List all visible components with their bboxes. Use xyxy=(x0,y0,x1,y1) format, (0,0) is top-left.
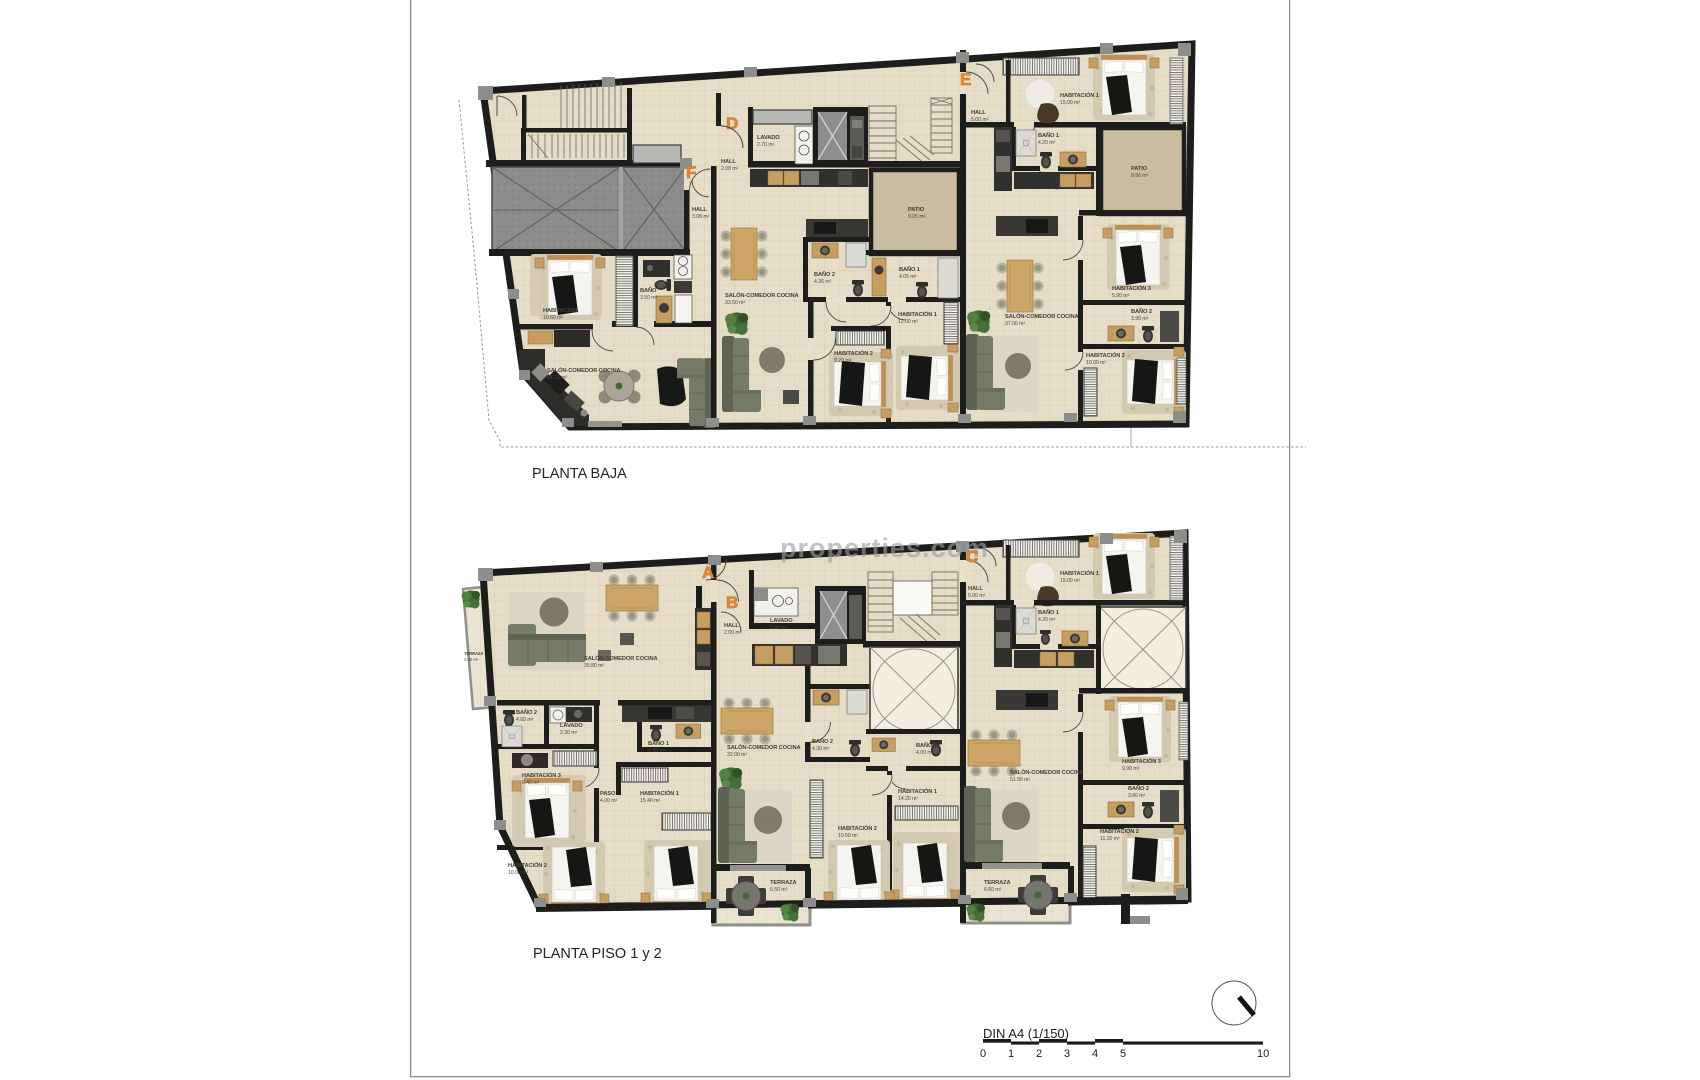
svg-text:HALL: HALL xyxy=(721,159,736,165)
svg-text:HABITACIÓN 3: HABITACIÓN 3 xyxy=(522,771,561,779)
svg-text:0: 0 xyxy=(980,1048,986,1060)
svg-text:10: 10 xyxy=(1257,1048,1269,1060)
svg-text:2.08 m²: 2.08 m² xyxy=(721,166,739,172)
svg-text:10.60 m²: 10.60 m² xyxy=(543,315,563,321)
svg-text:32.00 m²: 32.00 m² xyxy=(727,752,747,758)
svg-text:HABITACIÓN 3: HABITACIÓN 3 xyxy=(1122,757,1161,765)
svg-text:15.00 m²: 15.00 m² xyxy=(1060,100,1080,106)
svg-text:LAVADO: LAVADO xyxy=(770,618,793,624)
svg-text:3.08 m²: 3.08 m² xyxy=(692,214,710,220)
svg-text:39.80 m²: 39.80 m² xyxy=(584,663,604,669)
svg-text:BAÑO 1: BAÑO 1 xyxy=(916,742,937,749)
svg-text:C: C xyxy=(966,547,978,566)
svg-text:TERRAZA: TERRAZA xyxy=(984,880,1010,886)
svg-text:24.10 m²: 24.10 m² xyxy=(547,375,567,381)
svg-text:BAÑO 1: BAÑO 1 xyxy=(648,740,669,747)
svg-text:4.00 m²: 4.00 m² xyxy=(916,750,934,756)
svg-text:properties.com: properties.com xyxy=(780,533,989,563)
svg-text:5.00 m²: 5.00 m² xyxy=(968,593,986,599)
svg-text:HABITACIÓN 1: HABITACIÓN 1 xyxy=(1060,91,1099,99)
svg-text:HABITACIÓN 1: HABITACIÓN 1 xyxy=(898,787,937,795)
svg-text:3.80 m²: 3.80 m² xyxy=(1128,793,1146,799)
svg-text:3.50 m²: 3.50 m² xyxy=(640,295,658,301)
svg-text:HALL: HALL xyxy=(971,110,986,116)
svg-text:B: B xyxy=(726,593,738,612)
svg-text:9.05 m²: 9.05 m² xyxy=(908,214,926,220)
svg-text:HABITACIÓN 2: HABITACIÓN 2 xyxy=(508,861,547,869)
svg-text:BAÑO 2: BAÑO 2 xyxy=(516,709,537,716)
svg-text:9.40 m²: 9.40 m² xyxy=(522,780,540,786)
svg-text:33.50 m²: 33.50 m² xyxy=(725,300,745,306)
svg-text:14.20 m²: 14.20 m² xyxy=(898,796,918,802)
svg-text:51.50 m²: 51.50 m² xyxy=(1010,777,1030,783)
svg-text:9.96 m²: 9.96 m² xyxy=(1131,173,1149,179)
svg-text:2: 2 xyxy=(1036,1048,1042,1060)
svg-text:HABITACIÓN 2: HABITACIÓN 2 xyxy=(834,349,873,357)
svg-text:6.60 m²: 6.60 m² xyxy=(984,887,1002,893)
svg-text:10.00 m²: 10.00 m² xyxy=(1086,360,1106,366)
svg-text:3.90 m²: 3.90 m² xyxy=(770,625,788,631)
svg-text:9.20 m²: 9.20 m² xyxy=(834,358,852,364)
svg-text:HABITACIÓN 1: HABITACIÓN 1 xyxy=(640,789,679,797)
svg-text:BAÑO 2: BAÑO 2 xyxy=(1131,308,1152,315)
svg-text:11.20 m²: 11.20 m² xyxy=(1100,836,1120,842)
svg-text:15.40 m²: 15.40 m² xyxy=(640,798,660,804)
svg-text:PATIO: PATIO xyxy=(908,207,925,213)
svg-text:4.60 m²: 4.60 m² xyxy=(516,717,534,723)
svg-text:4.20 m²: 4.20 m² xyxy=(1038,140,1056,146)
svg-text:DIN A4 (1/150): DIN A4 (1/150) xyxy=(983,1026,1069,1041)
svg-text:37.00 m²: 37.00 m² xyxy=(1005,321,1025,327)
svg-text:BAÑO 2: BAÑO 2 xyxy=(812,738,833,745)
svg-text:PLANTA PISO 1 y 2: PLANTA PISO 1 y 2 xyxy=(533,946,662,962)
svg-text:SALÓN-COMEDOR COCINA: SALÓN-COMEDOR COCINA xyxy=(727,743,801,751)
svg-text:HABITACIÓN 1: HABITACIÓN 1 xyxy=(1060,569,1099,577)
svg-text:BAÑO 2: BAÑO 2 xyxy=(814,271,835,278)
svg-text:PLANTA BAJA: PLANTA BAJA xyxy=(532,466,627,482)
svg-text:4.90 m²: 4.90 m² xyxy=(648,748,666,754)
svg-text:4.20 m²: 4.20 m² xyxy=(1038,617,1056,623)
svg-text:15.00 m²: 15.00 m² xyxy=(1060,578,1080,584)
svg-text:4.00 m²: 4.00 m² xyxy=(464,657,479,662)
svg-text:PASO: PASO xyxy=(600,791,616,797)
svg-text:2.00 m²: 2.00 m² xyxy=(724,630,742,636)
svg-text:4.30 m²: 4.30 m² xyxy=(812,746,830,752)
svg-text:BAÑO 1: BAÑO 1 xyxy=(1038,609,1059,616)
svg-text:SALÓN-COMEDOR COCINA: SALÓN-COMEDOR COCINA xyxy=(1010,768,1084,776)
svg-text:12.00 m²: 12.00 m² xyxy=(898,319,918,325)
svg-text:9.90 m²: 9.90 m² xyxy=(1122,766,1140,772)
svg-text:D: D xyxy=(726,114,738,133)
svg-text:5: 5 xyxy=(1120,1048,1126,1060)
svg-text:LAVADO: LAVADO xyxy=(757,135,780,141)
svg-text:E: E xyxy=(960,70,971,89)
svg-text:HABITACIÓN 2: HABITACIÓN 2 xyxy=(1086,351,1125,359)
svg-text:BAÑO 1: BAÑO 1 xyxy=(1038,132,1059,139)
svg-text:SALÓN-COMEDOR COCINA: SALÓN-COMEDOR COCINA xyxy=(725,291,799,299)
svg-text:5.00 m²: 5.00 m² xyxy=(971,117,989,123)
svg-text:SALÓN-COMEDOR COCINA: SALÓN-COMEDOR COCINA xyxy=(584,654,658,662)
svg-text:4.05 m²: 4.05 m² xyxy=(899,274,917,280)
svg-text:2.70 m²: 2.70 m² xyxy=(757,142,775,148)
svg-text:PATIO: PATIO xyxy=(1131,166,1148,172)
svg-text:HABITACIÓN: HABITACIÓN xyxy=(543,306,577,314)
svg-text:LAVADO: LAVADO xyxy=(560,723,583,729)
svg-text:3.90 m²: 3.90 m² xyxy=(1131,316,1149,322)
svg-text:TERRAZA: TERRAZA xyxy=(464,651,483,656)
svg-text:3: 3 xyxy=(1064,1048,1070,1060)
svg-text:6.50 m²: 6.50 m² xyxy=(770,887,788,893)
svg-text:5.90 m²: 5.90 m² xyxy=(1112,293,1130,299)
svg-text:SALÓN-COMEDOR COCINA: SALÓN-COMEDOR COCINA xyxy=(1005,312,1079,320)
svg-text:HABITACIÓN 2: HABITACIÓN 2 xyxy=(838,824,877,832)
svg-text:TERRAZA: TERRAZA xyxy=(770,880,796,886)
svg-text:HABITACIÓN 1: HABITACIÓN 1 xyxy=(898,310,937,318)
svg-text:10.00 m²: 10.00 m² xyxy=(508,870,528,876)
svg-text:4.00 m²: 4.00 m² xyxy=(600,798,618,804)
svg-text:HALL: HALL xyxy=(724,623,739,629)
svg-text:HABITACIÓN 2: HABITACIÓN 2 xyxy=(1100,827,1139,835)
svg-text:2.30 m²: 2.30 m² xyxy=(560,730,578,736)
svg-text:BAÑO: BAÑO xyxy=(640,287,657,294)
svg-text:HABITACIÓN 3: HABITACIÓN 3 xyxy=(1112,284,1151,292)
svg-text:HALL: HALL xyxy=(968,586,983,592)
svg-text:10.50 m²: 10.50 m² xyxy=(838,833,858,839)
svg-text:SALÓN-COMEDOR COCINA: SALÓN-COMEDOR COCINA xyxy=(547,366,621,374)
svg-text:HALL: HALL xyxy=(692,207,707,213)
svg-text:1: 1 xyxy=(1008,1048,1014,1060)
svg-text:4.36 m²: 4.36 m² xyxy=(814,279,832,285)
svg-text:F: F xyxy=(686,163,696,182)
svg-text:BAÑO 1: BAÑO 1 xyxy=(899,266,920,273)
svg-text:4: 4 xyxy=(1092,1048,1098,1060)
svg-text:BAÑO 2: BAÑO 2 xyxy=(1128,785,1149,792)
